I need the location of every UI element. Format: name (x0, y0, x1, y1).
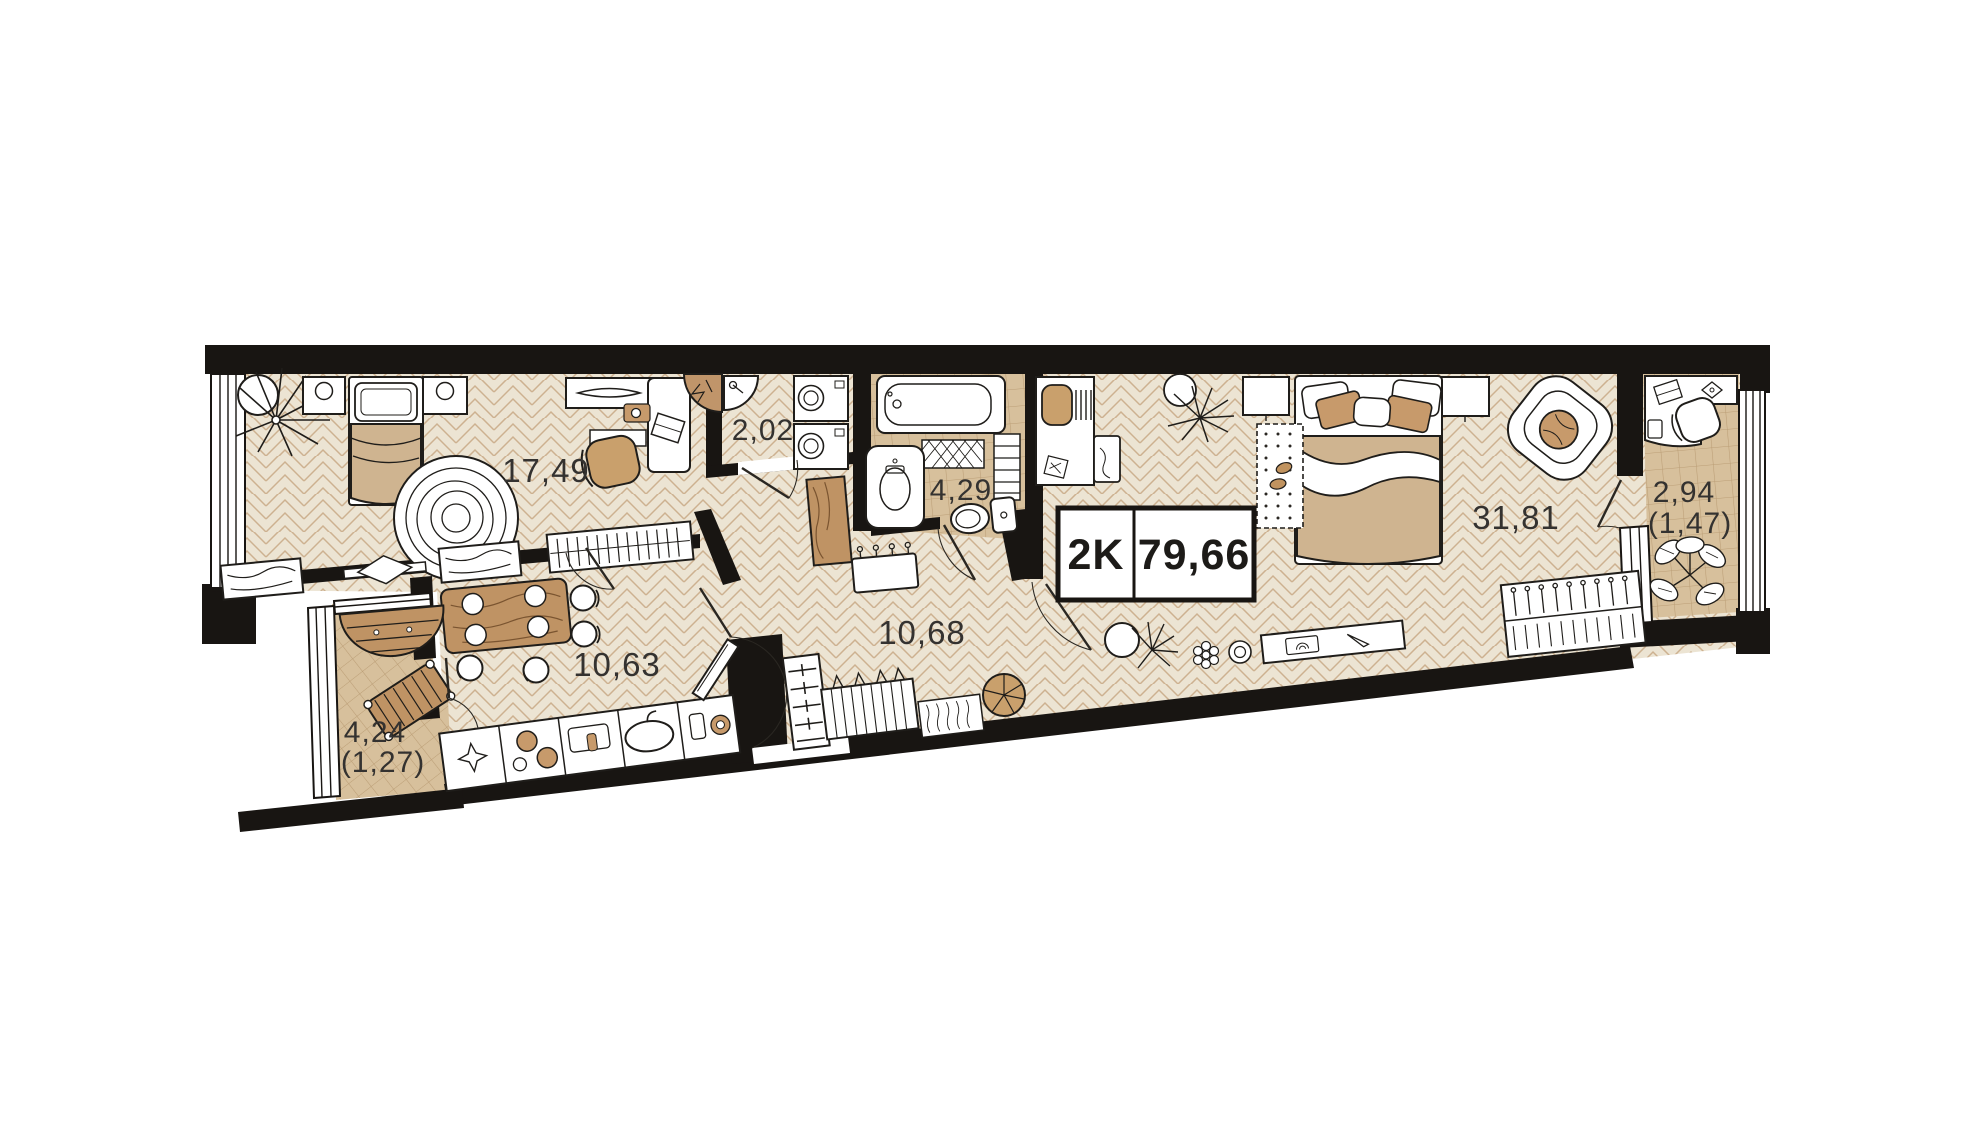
wall-right-bottom-block (1736, 608, 1770, 654)
dining-table (440, 578, 572, 654)
wardrobe-living (1501, 571, 1646, 657)
dryer-machine (794, 424, 848, 469)
hall-rug (918, 694, 984, 737)
area-label-loggia-left-reduced: (1,27) (341, 746, 425, 779)
bedside-rug (1257, 424, 1303, 528)
bath-mat (922, 440, 984, 468)
bottle (587, 733, 598, 751)
wall-top (205, 345, 1770, 374)
area-label-closet: 2,02 (732, 414, 794, 447)
area-label-bedroom: 17,49 (502, 452, 590, 489)
floor-plan: 17,49 2,02 4,29 10,63 10,68 31,81 2,94 (… (0, 0, 1980, 1143)
dresser-right (439, 541, 522, 582)
towel-ladder (994, 434, 1020, 500)
speaker-item (1229, 641, 1251, 663)
apartment-badge: 2K 79,66 (1058, 508, 1254, 600)
pouf-pinwheel (983, 674, 1025, 716)
area-label-loggia-right: 2,94 (1653, 476, 1715, 509)
window-loggia-left-side (308, 606, 340, 798)
vanity-sink (866, 446, 924, 528)
nightstand-bed-right (1441, 377, 1489, 422)
nightstand-left (303, 377, 345, 414)
floor-plan-canvas: 17,49 2,02 4,29 10,63 10,68 31,81 2,94 (… (0, 0, 1980, 1143)
area-label-bathroom: 4,29 (930, 474, 992, 507)
badge-type: 2K (1068, 531, 1125, 579)
area-label-hallway: 10,68 (878, 614, 966, 651)
nightstand-right (423, 377, 467, 414)
area-label-kitchen: 10,63 (573, 646, 661, 683)
dresser-left (221, 558, 304, 599)
double-bed (1295, 376, 1442, 564)
badge-total-area: 79,66 (1138, 531, 1251, 579)
area-label-living: 31,81 (1472, 499, 1560, 536)
window-right-side (1739, 390, 1765, 612)
area-label-loggia-right-reduced: (1,47) (1648, 507, 1732, 540)
wall-loggia-right-divider (1617, 373, 1643, 476)
bathtub (877, 376, 1005, 433)
area-label-loggia-left: 4,24 (344, 716, 406, 749)
washing-machine (794, 376, 848, 421)
tall-wood-cabinet (806, 476, 851, 565)
wall-top-right-block (1740, 345, 1770, 393)
window-bedroom-left (211, 374, 245, 588)
nightstand-bed-left (1243, 377, 1289, 421)
dish-rack (689, 713, 706, 740)
